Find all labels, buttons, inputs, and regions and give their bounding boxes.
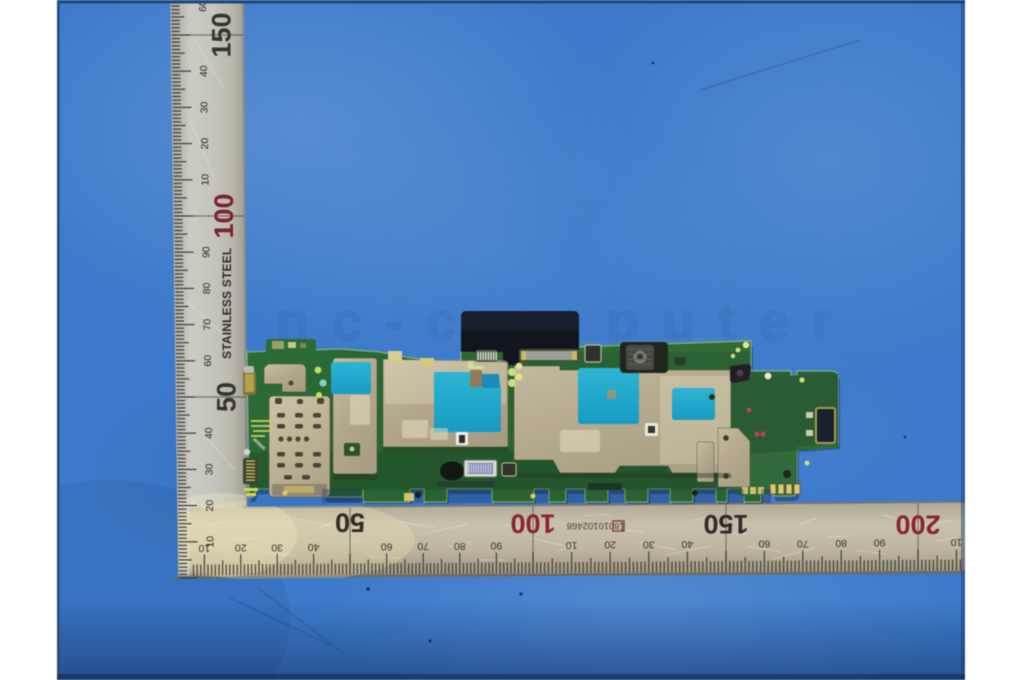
svg-text:100: 100 [510, 508, 555, 538]
svg-text:70: 70 [797, 537, 809, 549]
svg-text:30: 30 [199, 101, 211, 113]
svg-text:60: 60 [758, 538, 770, 550]
svg-text:60: 60 [202, 355, 214, 367]
svg-text:150: 150 [703, 509, 748, 539]
svg-text:10: 10 [205, 536, 217, 548]
svg-text:60: 60 [381, 541, 393, 553]
svg-text:10: 10 [951, 536, 963, 548]
svg-text:40: 40 [681, 538, 693, 550]
svg-text:200: 200 [895, 509, 940, 539]
svg-text:10: 10 [200, 174, 212, 186]
svg-text:80: 80 [835, 537, 847, 549]
svg-text:50: 50 [335, 508, 365, 538]
svg-text:20: 20 [604, 539, 616, 551]
svg-text:40: 40 [198, 65, 210, 77]
svg-text:150: 150 [207, 12, 237, 57]
svg-text:30: 30 [643, 538, 655, 550]
svg-text:20: 20 [199, 138, 211, 150]
svg-text:20: 20 [235, 542, 247, 554]
svg-text:90: 90 [874, 537, 886, 549]
svg-text:50: 50 [212, 382, 242, 412]
svg-text:40: 40 [308, 541, 320, 553]
svg-text:80: 80 [201, 282, 213, 294]
svg-text:100: 100 [209, 193, 239, 238]
svg-text:80: 80 [454, 540, 466, 552]
svg-text:90: 90 [201, 246, 213, 258]
svg-text:STAINLESS STEEL: STAINLESS STEEL [220, 248, 234, 359]
svg-text:40: 40 [203, 427, 215, 439]
svg-text:30: 30 [271, 541, 283, 553]
svg-text:10: 10 [566, 539, 578, 551]
svg-text:30: 30 [204, 463, 216, 475]
svg-text:70: 70 [417, 540, 429, 552]
svg-text:70: 70 [202, 319, 214, 331]
svg-text:nc-computer: nc-computer [276, 292, 856, 352]
svg-text:90: 90 [490, 540, 502, 552]
svg-text:20: 20 [204, 500, 216, 512]
